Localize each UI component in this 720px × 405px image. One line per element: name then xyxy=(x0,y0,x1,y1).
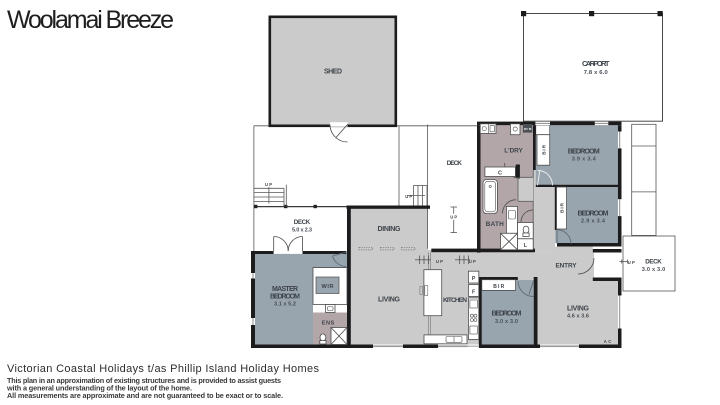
svg-text:All measurements are approxima: All measurements are approximate and are… xyxy=(7,391,283,400)
svg-text:3.0 x 3.0: 3.0 x 3.0 xyxy=(495,319,518,325)
svg-text:BIR: BIR xyxy=(541,144,547,155)
svg-text:LIVING: LIVING xyxy=(567,306,590,313)
svg-text:ENTRY: ENTRY xyxy=(556,263,578,270)
svg-text:BEDROOM: BEDROOM xyxy=(492,309,522,318)
svg-text:DECK: DECK xyxy=(645,259,662,266)
svg-text:ENS: ENS xyxy=(322,321,335,327)
svg-text:3.1 x 5.2: 3.1 x 5.2 xyxy=(274,302,296,308)
svg-text:KITCHEN: KITCHEN xyxy=(443,297,467,304)
svg-text:UP: UP xyxy=(628,260,635,265)
svg-text:W/M: W/M xyxy=(524,127,532,131)
svg-text:UP: UP xyxy=(265,182,272,187)
svg-text:WIR: WIR xyxy=(322,284,334,290)
svg-text:F: F xyxy=(472,290,475,296)
svg-text:BIR: BIR xyxy=(559,202,565,213)
svg-text:3.9 x 3.4: 3.9 x 3.4 xyxy=(572,157,597,163)
svg-text:7.8 x 6.0: 7.8 x 6.0 xyxy=(584,70,608,76)
svg-text:UP: UP xyxy=(469,259,476,264)
svg-text:BEDROOM: BEDROOM xyxy=(568,147,600,156)
svg-text:2.9 x 3.4: 2.9 x 3.4 xyxy=(581,219,606,225)
svg-text:BIR: BIR xyxy=(493,284,504,290)
svg-text:UP: UP xyxy=(450,215,457,220)
svg-text:BEDROOM: BEDROOM xyxy=(578,209,609,218)
svg-text:BEDROOM: BEDROOM xyxy=(270,294,300,301)
svg-text:Victorian Coastal Holidays t/a: Victorian Coastal Holidays t/as Phillip … xyxy=(7,363,320,375)
svg-text:UP: UP xyxy=(436,259,443,264)
svg-text:Woolamai Breeze: Woolamai Breeze xyxy=(7,6,174,34)
svg-text:C: C xyxy=(498,170,502,176)
svg-text:DECK: DECK xyxy=(294,219,311,226)
svg-text:5.0 x 2.3: 5.0 x 2.3 xyxy=(292,228,312,234)
svg-text:3.0 x 3.0: 3.0 x 3.0 xyxy=(642,267,666,273)
svg-text:4.6 x 3.6: 4.6 x 3.6 xyxy=(567,314,589,320)
svg-text:LIVING: LIVING xyxy=(378,297,401,304)
svg-text:SHED: SHED xyxy=(324,69,342,76)
svg-text:UP: UP xyxy=(405,194,412,199)
svg-text:BATH: BATH xyxy=(486,221,504,228)
svg-text:MASTER: MASTER xyxy=(272,286,298,293)
svg-text:L'DRY: L'DRY xyxy=(504,148,523,155)
svg-text:P: P xyxy=(472,276,476,282)
svg-text:CARPORT: CARPORT xyxy=(582,59,610,68)
svg-text:DINING: DINING xyxy=(378,226,402,233)
svg-text:DECK: DECK xyxy=(447,160,463,167)
svg-text:AC: AC xyxy=(604,339,612,344)
